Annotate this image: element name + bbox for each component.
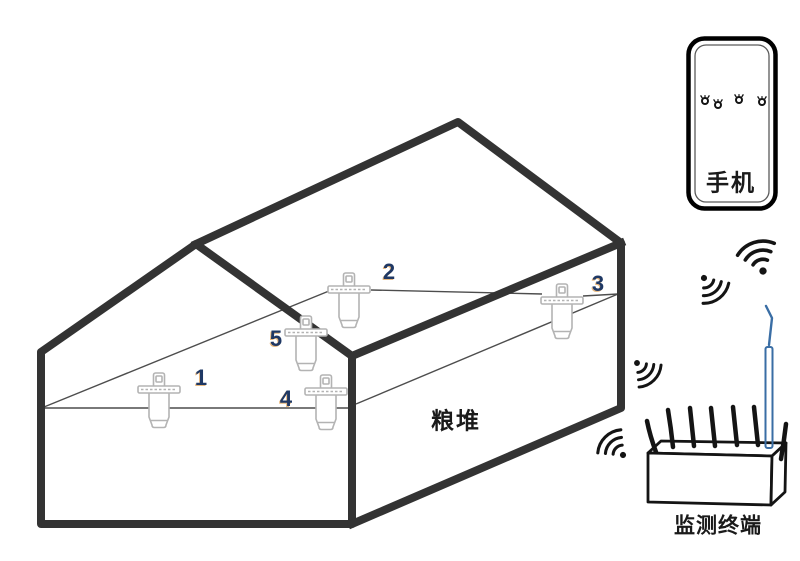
antenna-icon: [754, 407, 758, 445]
phone-label: 手机: [706, 172, 756, 195]
wifi-signal-icon: [624, 350, 665, 391]
sensor-2-label: 2: [383, 261, 395, 283]
monitoring-terminal: [647, 306, 786, 505]
terminal-front-face: [648, 453, 772, 505]
sensor-1-label: 1: [195, 367, 207, 389]
diagram-artwork: [0, 0, 800, 561]
blue-antenna-icon: [766, 306, 773, 448]
sensor-4-label: 4: [280, 388, 292, 410]
bug-icon: [758, 96, 767, 105]
antenna-icon: [647, 421, 656, 452]
bug-icon: [701, 95, 710, 104]
antenna-icon: [711, 408, 715, 446]
diagram-canvas: 1 2 3 4 5 粮堆 手机 监测终端: [0, 0, 800, 561]
granary-building: [41, 122, 621, 524]
grain-pile-label: 粮堆: [431, 410, 481, 433]
antenna-icon: [733, 407, 737, 445]
sensor-5-label: 5: [270, 328, 282, 350]
bug-icon: [735, 94, 744, 103]
wifi-signal-icon: [594, 426, 637, 469]
terminal-label: 监测终端: [674, 516, 762, 537]
wifi-signal-icon: [689, 266, 732, 308]
sensor-3-label: 3: [592, 273, 604, 295]
wifi-signal-icon: [735, 237, 782, 281]
bug-icon: [714, 99, 723, 108]
